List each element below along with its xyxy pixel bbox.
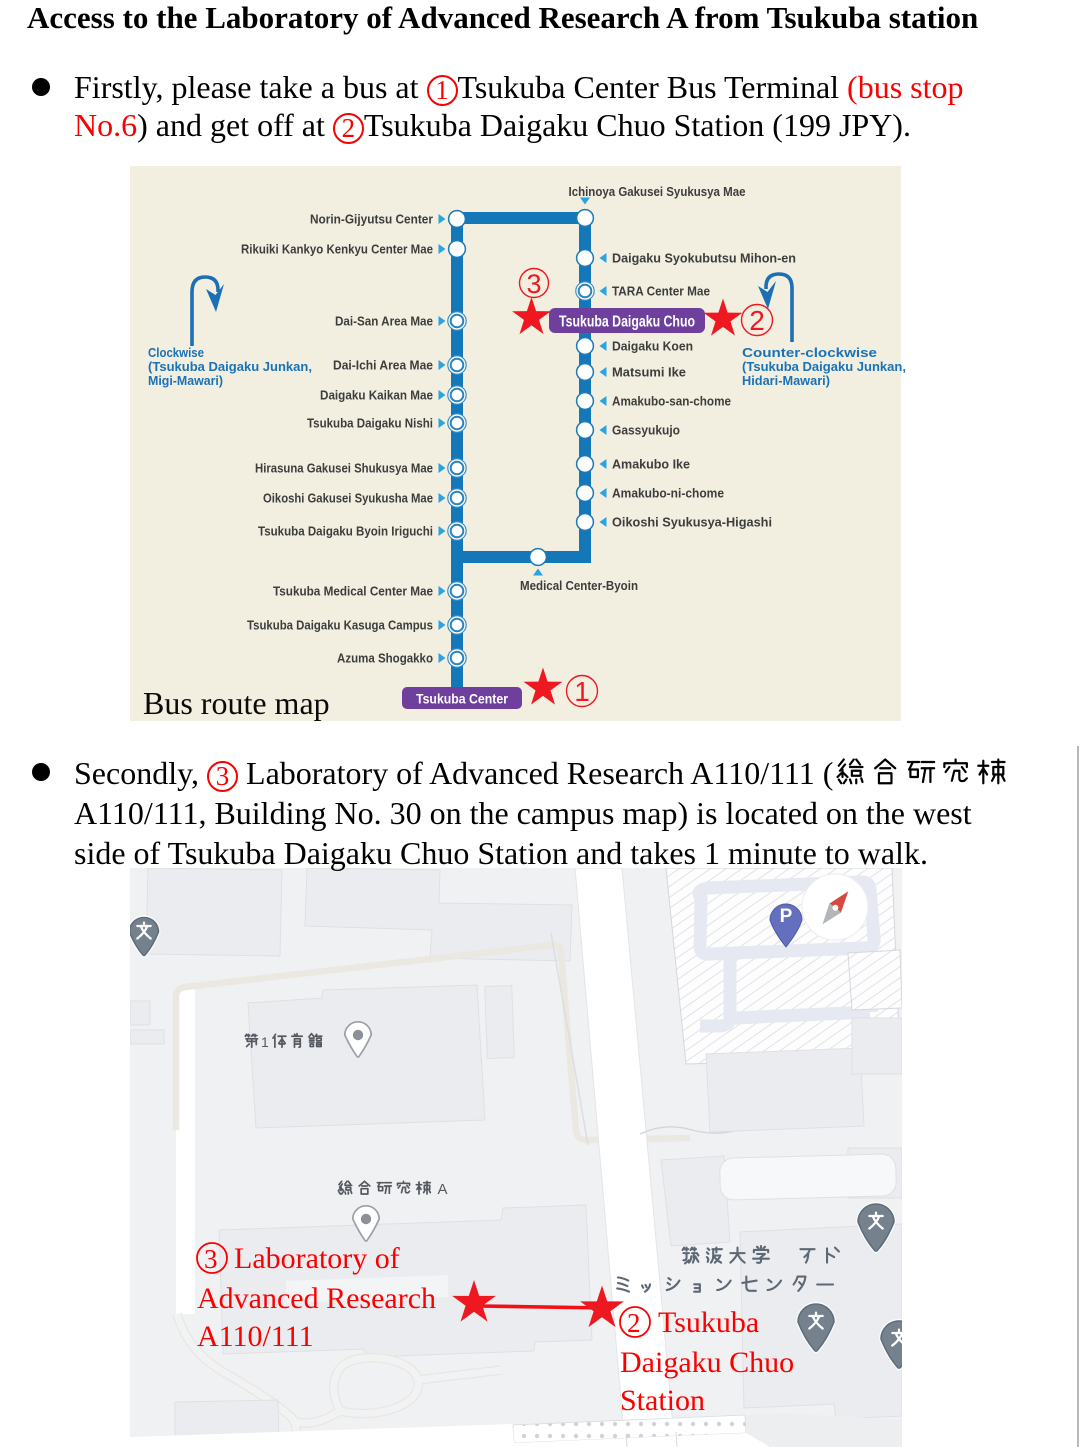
- svg-text:TARA Center Mae: TARA Center Mae: [612, 285, 710, 299]
- svg-text:Ichinoya Gakusei Syukusya Mae: Ichinoya Gakusei Syukusya Mae: [569, 185, 746, 199]
- svg-text:(Tsukuba Daigaku Junkan,: (Tsukuba Daigaku Junkan,: [742, 360, 906, 374]
- svg-text:Tsukuba Medical Center Mae: Tsukuba Medical Center Mae: [273, 585, 433, 599]
- svg-text:P: P: [780, 906, 793, 927]
- svg-text:Hirasuna Gakusei Shukusya Mae: Hirasuna Gakusei Shukusya Mae: [255, 462, 433, 476]
- svg-text:Amakubo Ike: Amakubo Ike: [612, 458, 690, 472]
- svg-text:Norin-Gijyutsu Center: Norin-Gijyutsu Center: [310, 213, 433, 227]
- svg-text:Dai-Ichi Area Mae: Dai-Ichi Area Mae: [333, 359, 433, 373]
- svg-text:Medical Center-Byoin: Medical Center-Byoin: [520, 579, 638, 593]
- svg-text:2: 2: [749, 305, 765, 336]
- svg-text:Daigaku Syokubutsu Mihon-en: Daigaku Syokubutsu Mihon-en: [612, 252, 796, 266]
- svg-text:Advanced Research: Advanced Research: [197, 1282, 436, 1315]
- svg-text:Counter-clockwise: Counter-clockwise: [742, 346, 877, 360]
- svg-text:Tsukuba Center: Tsukuba Center: [416, 691, 508, 707]
- svg-text:Daigaku Chuo: Daigaku Chuo: [620, 1346, 794, 1379]
- svg-text:Station: Station: [620, 1384, 705, 1417]
- svg-text:Hidari-Mawari): Hidari-Mawari): [742, 374, 830, 388]
- svg-text:3: 3: [526, 269, 541, 299]
- svg-text:Migi-Mawari): Migi-Mawari): [148, 374, 223, 388]
- svg-text:Tsukuba: Tsukuba: [658, 1306, 759, 1339]
- svg-text:Laboratory of: Laboratory of: [234, 1242, 400, 1275]
- svg-text:Amakubo-san-chome: Amakubo-san-chome: [612, 395, 731, 409]
- svg-text:Oikoshi Gakusei Syukusha Mae: Oikoshi Gakusei Syukusha Mae: [263, 492, 433, 506]
- svg-text:Azuma Shogakko: Azuma Shogakko: [337, 652, 433, 666]
- svg-text:Matsumi Ike: Matsumi Ike: [612, 366, 686, 380]
- svg-text:1: 1: [574, 676, 590, 707]
- svg-text:Gassyukujo: Gassyukujo: [612, 424, 680, 438]
- svg-text:Daigaku Koen: Daigaku Koen: [612, 340, 693, 354]
- svg-text:Tsukuba Daigaku Chuo: Tsukuba Daigaku Chuo: [559, 314, 695, 331]
- svg-text:Tsukuba Daigaku Nishi: Tsukuba Daigaku Nishi: [307, 417, 433, 431]
- svg-text:Daigaku Kaikan Mae: Daigaku Kaikan Mae: [320, 389, 433, 403]
- svg-text:Tsukuba Daigaku Byoin Iriguchi: Tsukuba Daigaku Byoin Iriguchi: [258, 525, 433, 539]
- svg-text:Clockwise: Clockwise: [148, 346, 204, 360]
- svg-text:Oikoshi Syukusya-Higashi: Oikoshi Syukusya-Higashi: [612, 516, 772, 530]
- svg-text:A: A: [438, 1181, 448, 1198]
- svg-text:A110/111: A110/111: [197, 1320, 314, 1353]
- svg-text:1: 1: [261, 1034, 269, 1050]
- svg-text:Amakubo-ni-chome: Amakubo-ni-chome: [612, 487, 724, 501]
- svg-text:2: 2: [627, 1308, 641, 1338]
- svg-text:Rikuiki Kankyo Kenkyu Center M: Rikuiki Kankyo Kenkyu Center Mae: [241, 243, 433, 257]
- svg-text:Dai-San Area Mae: Dai-San Area Mae: [335, 315, 433, 329]
- svg-text:3: 3: [204, 1244, 218, 1274]
- svg-text:(Tsukuba Daigaku Junkan,: (Tsukuba Daigaku Junkan,: [148, 360, 312, 374]
- svg-text:Tsukuba Daigaku Kasuga Campus: Tsukuba Daigaku Kasuga Campus: [247, 619, 433, 633]
